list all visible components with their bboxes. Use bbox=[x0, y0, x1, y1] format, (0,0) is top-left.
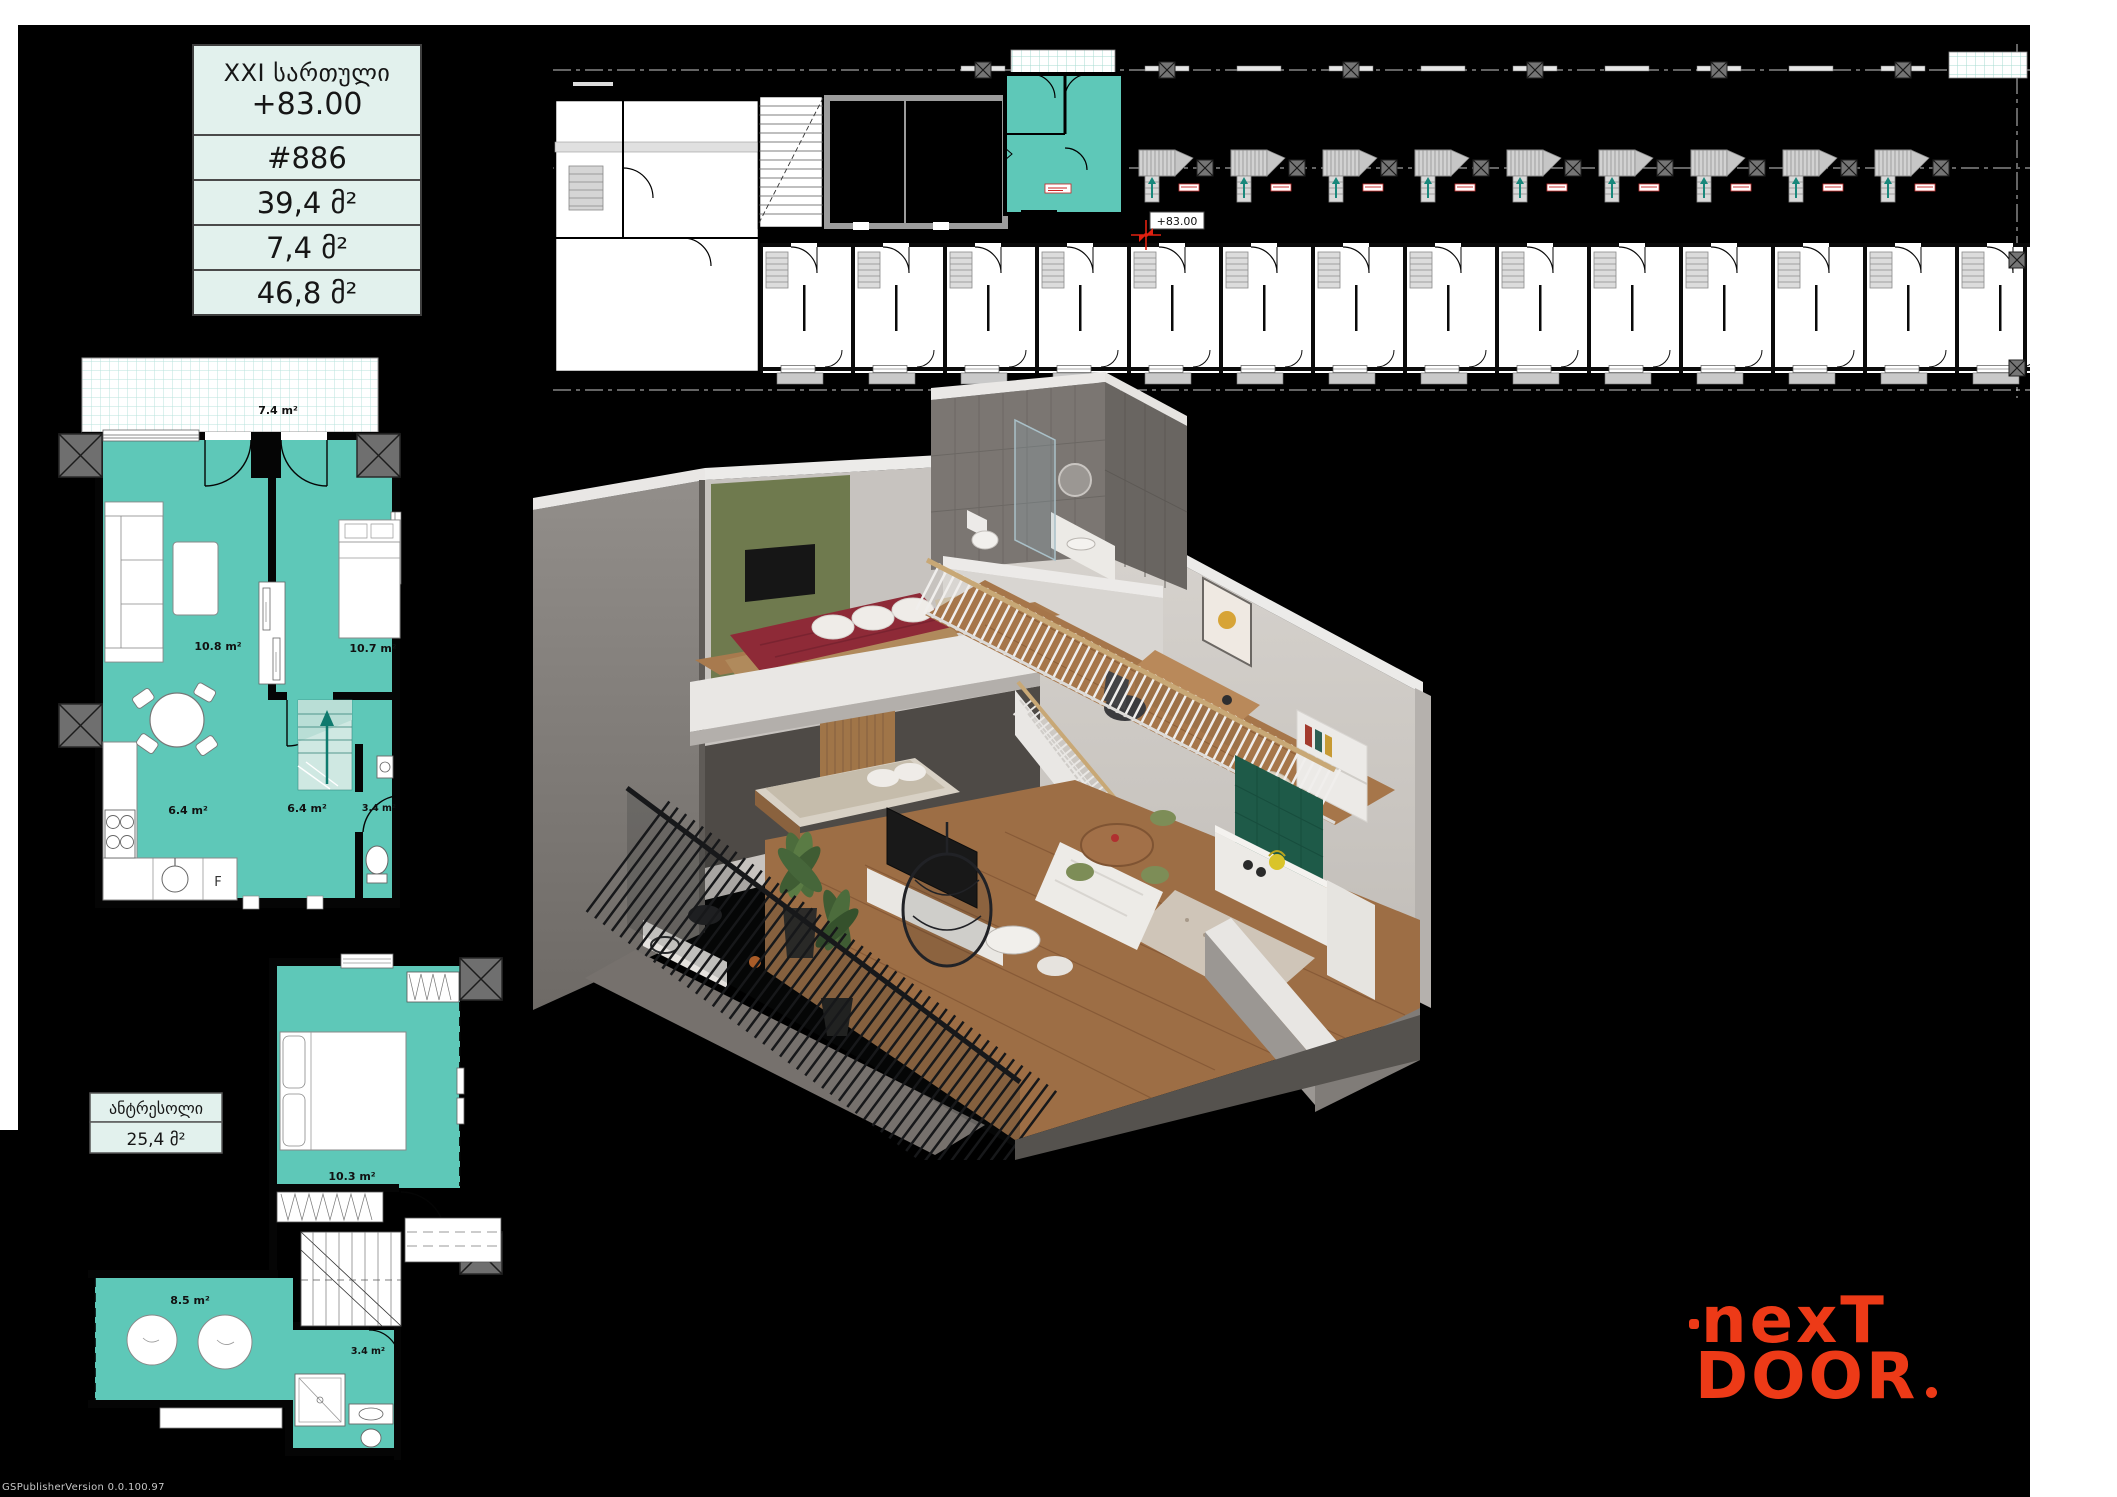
logo-reg-dot-icon bbox=[1926, 1387, 1937, 1398]
render-kettle bbox=[1269, 854, 1285, 870]
highlighted-unit bbox=[1005, 50, 1123, 218]
kitchen-area-label: 6.4 m² bbox=[168, 804, 208, 817]
info-row-area-apartment: 39,4 მ² bbox=[194, 181, 420, 226]
toilet-icon bbox=[366, 846, 388, 874]
mezz-bedroom-label: 10.3 m² bbox=[328, 1170, 375, 1183]
watermark: GSPublisherVersion 0.0.100.97 bbox=[2, 1482, 165, 1493]
render-3d bbox=[515, 360, 1445, 1160]
apartment-number: #886 bbox=[267, 141, 347, 175]
stairs-up bbox=[298, 700, 352, 790]
sink bbox=[162, 866, 188, 892]
unit-plan-mezzanine: ანტრესოლი 25,4 მ² bbox=[55, 948, 515, 1493]
pouf-icon bbox=[127, 1315, 177, 1365]
upper-stair-row bbox=[1139, 150, 1935, 202]
terrace-patch-right bbox=[1949, 52, 2027, 78]
pouf-icon bbox=[198, 1315, 252, 1369]
area-total: 46,8 მ² bbox=[257, 276, 358, 310]
mezzanine-total-area: 25,4 მ² bbox=[127, 1130, 186, 1150]
building-floor-plan: +83.00 bbox=[553, 38, 2030, 403]
terrace-area-label: 7.4 m² bbox=[258, 404, 298, 417]
mezz-bed bbox=[280, 1032, 406, 1150]
info-row-area-total: 46,8 მ² bbox=[194, 271, 420, 314]
ledge bbox=[160, 1408, 282, 1428]
render-toilet bbox=[972, 531, 998, 549]
page-margin-left bbox=[0, 25, 18, 1130]
mezzanine-label-box: ანტრესოლი 25,4 მ² bbox=[90, 1093, 222, 1153]
page-margin-right bbox=[2030, 0, 2117, 1497]
washbasin-icon bbox=[377, 756, 393, 778]
highlighted-unit-terrace bbox=[1011, 50, 1115, 74]
living-area-label: 10.8 m² bbox=[194, 640, 241, 653]
info-row-area-terrace: 7,4 მ² bbox=[194, 226, 420, 271]
bathroom-area-label: 3.4 m² bbox=[362, 803, 396, 814]
info-row-floor: XXI სართული +83.00 bbox=[194, 46, 420, 136]
logo-text-door: DOOR bbox=[1695, 1340, 1918, 1414]
elevation-label: +83.00 bbox=[251, 87, 362, 122]
info-table: XXI სართული +83.00 #886 39,4 მ² 7,4 მ² 4… bbox=[192, 44, 422, 316]
bedroom-area-label: 10.7 m² bbox=[349, 642, 396, 655]
bed bbox=[339, 520, 400, 638]
sofa bbox=[105, 502, 163, 662]
level-marker-text: +83.00 bbox=[1157, 215, 1198, 228]
stair-core bbox=[759, 96, 823, 228]
render-mirror bbox=[1059, 464, 1091, 496]
left-end-unit bbox=[555, 100, 759, 372]
mezz-window bbox=[341, 954, 393, 968]
info-row-apartment: #886 bbox=[194, 136, 420, 181]
hall-area-label: 6.4 m² bbox=[287, 802, 327, 815]
render-shower-glass bbox=[1015, 420, 1055, 560]
render-tv-upper bbox=[745, 544, 815, 602]
terrace bbox=[82, 358, 378, 432]
stove bbox=[105, 810, 135, 858]
render-dining-table bbox=[1081, 824, 1153, 866]
coffee-table bbox=[173, 542, 218, 615]
area-terrace: 7,4 მ² bbox=[266, 231, 348, 265]
fridge-label: F bbox=[214, 875, 221, 890]
service-core bbox=[827, 98, 1005, 230]
mezz-bath-label: 3.4 m² bbox=[351, 1346, 385, 1357]
page-margin-top bbox=[0, 0, 2117, 25]
logo-dot-icon bbox=[1689, 1319, 1699, 1329]
mezz-hall-label: 8.5 m² bbox=[170, 1294, 210, 1307]
area-apartment: 39,4 მ² bbox=[257, 186, 358, 220]
unit-plan-level1: 7.4 m² bbox=[55, 352, 415, 982]
mezz-sink bbox=[349, 1404, 393, 1424]
sliding-door bbox=[259, 582, 285, 684]
floor-label: XXI სართული bbox=[224, 59, 391, 87]
logo-line2: DOOR bbox=[1695, 1349, 1937, 1405]
mezz-toilet-icon bbox=[361, 1429, 381, 1447]
mezzanine-title: ანტრესოლი bbox=[109, 1099, 203, 1118]
brand-logo: nexT DOOR bbox=[1695, 1293, 1937, 1406]
render-coffee-table bbox=[986, 926, 1040, 954]
mezz-shower bbox=[295, 1374, 345, 1426]
page: { "info_table": { "floor": "XXI სართული"… bbox=[0, 0, 2117, 1497]
